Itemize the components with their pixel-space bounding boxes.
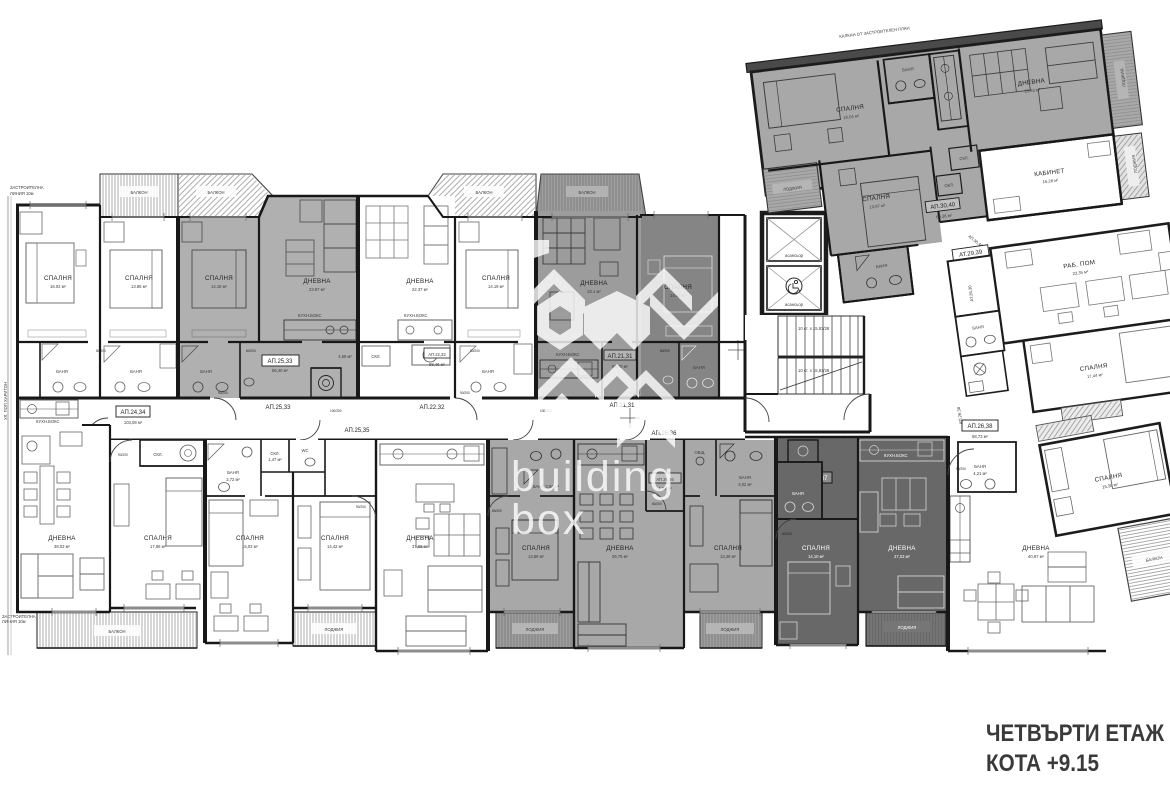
- svg-text:40,97 м²: 40,97 м²: [1028, 554, 1045, 559]
- svg-text:КОТА +9.15: КОТА +9.15: [986, 750, 1099, 777]
- svg-text:АП.24,34: АП.24,34: [121, 410, 147, 416]
- svg-text:100/200: 100/200: [330, 409, 342, 413]
- svg-text:АП.25,33: АП.25,33: [268, 359, 294, 365]
- svg-text:СПАЛНЯ: СПАЛНЯ: [802, 545, 830, 552]
- svg-text:асансьор: асансьор: [785, 302, 804, 307]
- svg-text:АП.26,38: АП.26,38: [968, 424, 994, 430]
- svg-text:WC: WC: [302, 448, 309, 453]
- svg-text:СКЛ.: СКЛ.: [153, 452, 162, 457]
- svg-text:ДНЕВНА: ДНЕВНА: [580, 280, 608, 287]
- svg-text:ЛОДЖИЯ: ЛОДЖИЯ: [325, 627, 344, 632]
- svg-text:КУХН.БОКС: КУХН.БОКС: [298, 313, 322, 318]
- svg-text:14,10 м²: 14,10 м²: [808, 554, 825, 559]
- svg-text:СКЛ.: СКЛ.: [371, 354, 380, 359]
- svg-text:37,98 м²: 37,98 м²: [412, 544, 429, 549]
- svg-text:КУХН.БОКС: КУХН.БОКС: [556, 352, 580, 357]
- svg-text:АП.22,32: АП.22,32: [420, 405, 446, 411]
- svg-text:16.02 м²: 16.02 м²: [50, 284, 67, 289]
- svg-text:13.85 м²: 13.85 м²: [131, 284, 148, 289]
- svg-text:90/200: 90/200: [956, 467, 966, 471]
- svg-text:БАЛКОН: БАЛКОН: [208, 190, 225, 195]
- svg-text:СКЛ.: СКЛ.: [270, 451, 279, 456]
- svg-text:14.19 м²: 14.19 м²: [488, 284, 505, 289]
- svg-text:БАНЯ: БАНЯ: [56, 369, 68, 374]
- svg-text:АП.25,33: АП.25,33: [266, 405, 292, 411]
- svg-text:БАНЯ: БАНЯ: [200, 369, 212, 374]
- svg-text:17,86 м²: 17,86 м²: [150, 544, 167, 549]
- svg-text:БАНЯ: БАНЯ: [130, 369, 142, 374]
- svg-text:15,03 м²: 15,03 м²: [242, 544, 259, 549]
- svg-text:ДНЕВНА: ДНЕВНА: [1022, 545, 1050, 552]
- svg-text:ЛОДЖИЯ: ЛОДЖИЯ: [898, 625, 917, 630]
- svg-text:98,46 м²: 98,46 м²: [429, 362, 446, 367]
- svg-text:80/200: 80/200: [96, 349, 106, 353]
- svg-text:13,49 м²: 13,49 м²: [720, 554, 737, 559]
- svg-text:1,47 м²: 1,47 м²: [268, 457, 282, 462]
- svg-text:90/200: 90/200: [460, 391, 470, 395]
- svg-text:90/200: 90/200: [218, 391, 228, 395]
- svg-text:КУХН.БОКС: КУХН.БОКС: [404, 313, 428, 318]
- svg-text:10 ст. х 15,83/28: 10 ст. х 15,83/28: [798, 326, 830, 331]
- svg-text:ДНЕВНА: ДНЕВНА: [606, 545, 634, 552]
- svg-text:БАНЯ: БАНЯ: [739, 475, 751, 480]
- svg-text:СПАЛНЯ: СПАЛНЯ: [125, 275, 153, 282]
- svg-text:4,21 м²: 4,21 м²: [973, 471, 987, 476]
- svg-text:14.19 м²: 14.19 м²: [211, 284, 228, 289]
- svg-text:80/200: 80/200: [492, 509, 502, 513]
- svg-text:ДНЕВНА: ДНЕВНА: [48, 535, 76, 542]
- svg-text:БАНЯ: БАНЯ: [974, 464, 986, 469]
- svg-text:БАНЯ: БАНЯ: [227, 470, 239, 475]
- svg-text:КУХН.БОКС: КУХН.БОКС: [884, 453, 908, 458]
- svg-text:ОБЩ.: ОБЩ.: [694, 450, 705, 455]
- svg-text:ДНЕВНА: ДНЕВНА: [406, 278, 434, 285]
- svg-text:ЧЕТВЪРТИ ЕТАЖ: ЧЕТВЪРТИ ЕТАЖ: [986, 720, 1164, 747]
- svg-text:26,75 м²: 26,75 м²: [612, 554, 629, 559]
- svg-text:building: building: [511, 453, 675, 501]
- svg-text:СПАЛНЯ: СПАЛНЯ: [482, 275, 510, 282]
- svg-text:68,73 м²: 68,73 м²: [972, 434, 989, 439]
- svg-text:АП.21,31: АП.21,31: [608, 354, 634, 360]
- svg-text:ЛИНИЯ 10м: ЛИНИЯ 10м: [2, 619, 26, 624]
- svg-text:СПАЛНЯ: СПАЛНЯ: [714, 545, 742, 552]
- svg-text:3,02 м²: 3,02 м²: [738, 482, 752, 487]
- svg-text:ДНЕВНА: ДНЕВНА: [888, 545, 916, 552]
- svg-text:14,42 м²: 14,42 м²: [327, 544, 344, 549]
- svg-text:38,03 м²: 38,03 м²: [54, 544, 71, 549]
- svg-text:АП.25,35: АП.25,35: [345, 428, 371, 434]
- svg-text:БАЛКОН: БАЛКОН: [579, 190, 596, 195]
- svg-text:СПАЛНЯ: СПАЛНЯ: [321, 535, 349, 542]
- svg-text:4,59 м²: 4,59 м²: [338, 354, 352, 359]
- svg-text:27,03 м²: 27,03 м²: [894, 554, 911, 559]
- svg-text:3,72 м²: 3,72 м²: [226, 477, 240, 482]
- svg-text:10 ст. х 15,83/28: 10 ст. х 15,83/28: [798, 368, 830, 373]
- svg-text:66,40 м²: 66,40 м²: [272, 368, 289, 373]
- svg-text:22.37 м²: 22.37 м²: [412, 287, 429, 292]
- svg-text:БАНЯ: БАНЯ: [693, 365, 705, 370]
- svg-text:АП.22,32: АП.22,32: [428, 352, 446, 357]
- svg-text:80/200: 80/200: [246, 349, 256, 353]
- svg-text:БАНЯ: БАНЯ: [482, 369, 494, 374]
- svg-text:КУХН.БОКС: КУХН.БОКС: [36, 419, 60, 424]
- svg-text:23.1 м²: 23.1 м²: [587, 289, 601, 294]
- svg-text:СПАЛНЯ: СПАЛНЯ: [522, 545, 550, 552]
- svg-text:ЗАСТРОИТЕЛНА: ЗАСТРОИТЕЛНА: [10, 185, 44, 190]
- svg-text:80/200: 80/200: [660, 349, 670, 353]
- svg-text:80/200: 80/200: [470, 349, 480, 353]
- svg-text:БАЛКОН: БАЛКОН: [109, 629, 126, 634]
- svg-text:90/200: 90/200: [118, 453, 128, 457]
- svg-text:box: box: [511, 496, 586, 544]
- svg-text:БАЛКОН: БАЛКОН: [131, 190, 148, 195]
- svg-text:СПАЛНЯ: СПАЛНЯ: [144, 535, 172, 542]
- svg-text:СПАЛНЯ: СПАЛНЯ: [44, 275, 72, 282]
- svg-text:СПАЛНЯ: СПАЛНЯ: [236, 535, 264, 542]
- svg-text:СПАЛНЯ: СПАЛНЯ: [205, 275, 233, 282]
- svg-text:УЛ. ПОП ХАРИТОН: УЛ. ПОП ХАРИТОН: [3, 382, 8, 420]
- svg-text:БАЛКОН: БАЛКОН: [476, 190, 493, 195]
- svg-text:ЛОДЖИЯ: ЛОДЖИЯ: [526, 627, 545, 632]
- svg-text:103,08 м²: 103,08 м²: [124, 420, 143, 425]
- svg-text:80/200: 80/200: [652, 502, 662, 506]
- svg-text:23.97 м²: 23.97 м²: [309, 287, 326, 292]
- svg-text:ЛОДЖИЯ: ЛОДЖИЯ: [721, 627, 740, 632]
- svg-text:90/200: 90/200: [356, 505, 366, 509]
- svg-text:80/200: 80/200: [782, 532, 792, 536]
- svg-text:ДНЕВНА: ДНЕВНА: [303, 278, 331, 285]
- svg-text:ЛИНИЯ 10м: ЛИНИЯ 10м: [10, 191, 34, 196]
- svg-text:асансьор: асансьор: [785, 253, 804, 258]
- svg-text:13,89 м²: 13,89 м²: [528, 554, 545, 559]
- svg-text:БАНЯ: БАНЯ: [792, 491, 804, 496]
